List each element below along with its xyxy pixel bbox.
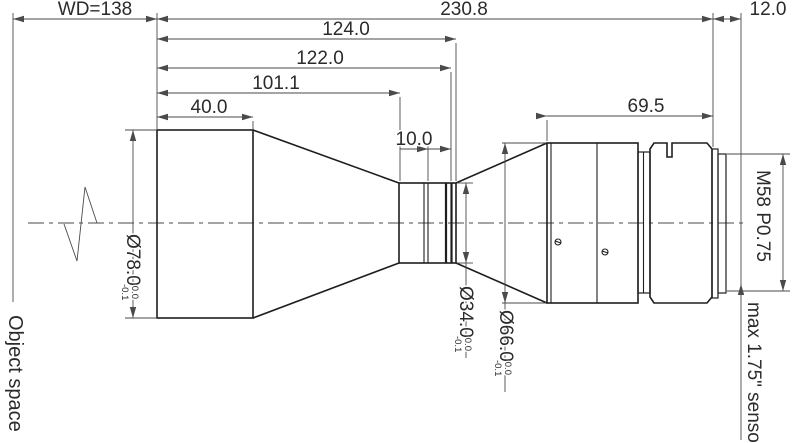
dim-total-length: 230.8 <box>440 0 488 20</box>
object-space-label: Object space <box>4 315 26 432</box>
lens-body-outline <box>157 130 726 318</box>
thread-cylinder <box>718 154 726 293</box>
dim-40: 40.0 <box>191 97 228 118</box>
max-sensor-label: max 1.75" sensor <box>743 302 764 443</box>
dim-waist-diameter: Ø34.00.0-0.1 <box>452 286 476 352</box>
dim-124: 124.0 <box>322 19 370 40</box>
dim-rear-diameter: Ø66.00.0-0.1 <box>492 310 516 376</box>
dim-front-diameter: Ø78.00.0-0.1 <box>119 234 143 300</box>
dim-122: 122.0 <box>296 48 344 69</box>
dim-101: 101.1 <box>252 73 300 94</box>
dim-flange-to-sensor: 12.0 <box>750 0 787 20</box>
rear-step <box>712 149 718 298</box>
lens-technical-drawing: WD=138 230.8 12.0 124.0 122.0 101.1 40.0… <box>0 0 800 443</box>
dimension-texts: WD=138 230.8 12.0 124.0 122.0 101.1 40.0… <box>4 0 786 443</box>
technical-drawing-canvas: WD=138 230.8 12.0 124.0 122.0 101.1 40.0… <box>0 0 800 443</box>
dim-69: 69.5 <box>628 96 665 117</box>
thread-spec-label: M58 P0.75 <box>752 170 773 262</box>
dimension-lines <box>13 19 783 392</box>
set-screw <box>602 249 608 255</box>
front-cell <box>157 130 253 318</box>
dim-10: 10.0 <box>396 129 433 150</box>
extension-lines <box>13 13 790 440</box>
dim-working-distance: WD=138 <box>58 0 132 20</box>
set-screw <box>555 239 561 245</box>
break-symbol <box>64 187 97 261</box>
